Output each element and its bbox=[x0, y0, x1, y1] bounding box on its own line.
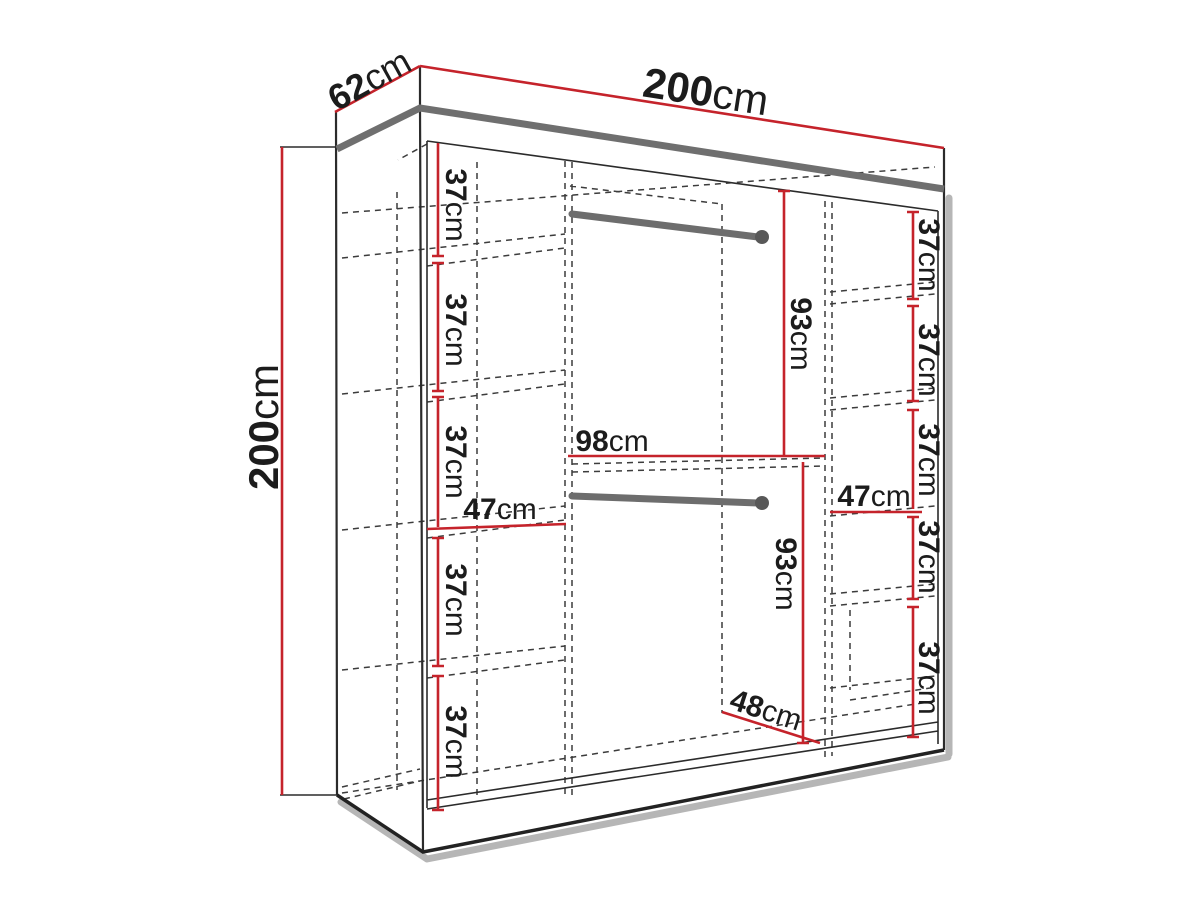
hidden-edges-dashed bbox=[342, 144, 935, 799]
dim-shelf-left-1-label: 37cm bbox=[440, 168, 473, 241]
hanging-rail-bottom bbox=[572, 496, 758, 503]
dim-shelf-right-5-label: 37cm bbox=[913, 641, 946, 714]
base-front-edge bbox=[337, 750, 944, 852]
dim-bottom-width-label: 48cm bbox=[726, 683, 806, 737]
dim-shelf-right-4-label: 37cm bbox=[913, 520, 946, 593]
dim-shelf-right-1-label: 37cm bbox=[913, 218, 946, 291]
dim-hang-top-label: 93cm bbox=[785, 297, 818, 370]
dim-hang-bottom-label: 93cm bbox=[770, 537, 803, 610]
hanging-rails bbox=[572, 214, 769, 510]
dim-shelf-left-4-label: 37cm bbox=[440, 563, 473, 636]
cabinet-structure bbox=[336, 66, 944, 852]
dim-shelf-left-3-label: 37cm bbox=[440, 425, 473, 498]
inner-frame-and-floor-lines bbox=[427, 141, 938, 809]
top-panel-front-band bbox=[337, 108, 944, 189]
dashed-middle-divider-shelf bbox=[572, 458, 825, 472]
dim-mid-width-label: 98cm bbox=[575, 425, 648, 458]
diagram-canvas: 62cm 200cm 200cm 37cm 37cm 37cm 37cm 37c… bbox=[0, 0, 1200, 900]
rail-end-cap-bottom bbox=[755, 496, 769, 510]
extension-ticks bbox=[280, 147, 337, 795]
dim-width-top-label: 200cm bbox=[640, 58, 772, 124]
dim-col-width-right-label: 47cm bbox=[837, 480, 910, 513]
rail-end-cap-top bbox=[755, 230, 769, 244]
dim-col-width-left-label: 47cm bbox=[463, 493, 536, 526]
height-dim-ticks bbox=[280, 147, 337, 795]
dim-shelf-right-2-label: 37cm bbox=[913, 323, 946, 396]
dim-depth-label: 62cm bbox=[321, 40, 418, 119]
hanging-rail-top bbox=[572, 214, 758, 237]
dimension-labels: 62cm 200cm 200cm 37cm 37cm 37cm 37cm 37c… bbox=[240, 40, 946, 779]
dim-shelf-left-5-label: 37cm bbox=[440, 705, 473, 778]
dim-shelf-left-2-label: 37cm bbox=[440, 293, 473, 366]
dim-shelf-right-3-label: 37cm bbox=[913, 423, 946, 496]
dashed-vertical-back-edges bbox=[397, 144, 930, 799]
dim-height-label: 200cm bbox=[240, 364, 287, 490]
wardrobe-dimension-diagram: 62cm 200cm 200cm 37cm 37cm 37cm 37cm 37c… bbox=[0, 0, 1200, 900]
